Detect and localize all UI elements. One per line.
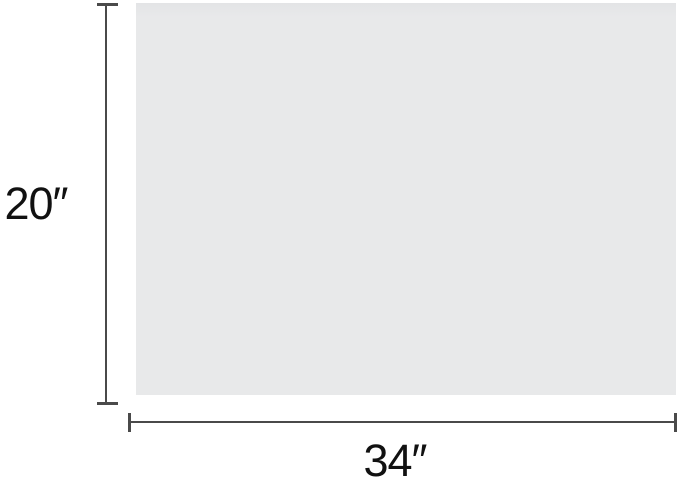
width-dimension-tick-right (674, 413, 677, 432)
measured-rectangle (136, 3, 676, 395)
dimension-diagram: 20″ 34″ (0, 0, 679, 483)
height-dimension-cap-top (97, 3, 118, 6)
width-dimension-tick-left (128, 413, 131, 432)
width-dimension-line (129, 421, 677, 423)
height-dimension-line (105, 4, 107, 404)
height-label: 20″ (0, 181, 72, 226)
height-dimension-cap-bottom (97, 402, 118, 405)
width-label: 34″ (345, 438, 445, 483)
